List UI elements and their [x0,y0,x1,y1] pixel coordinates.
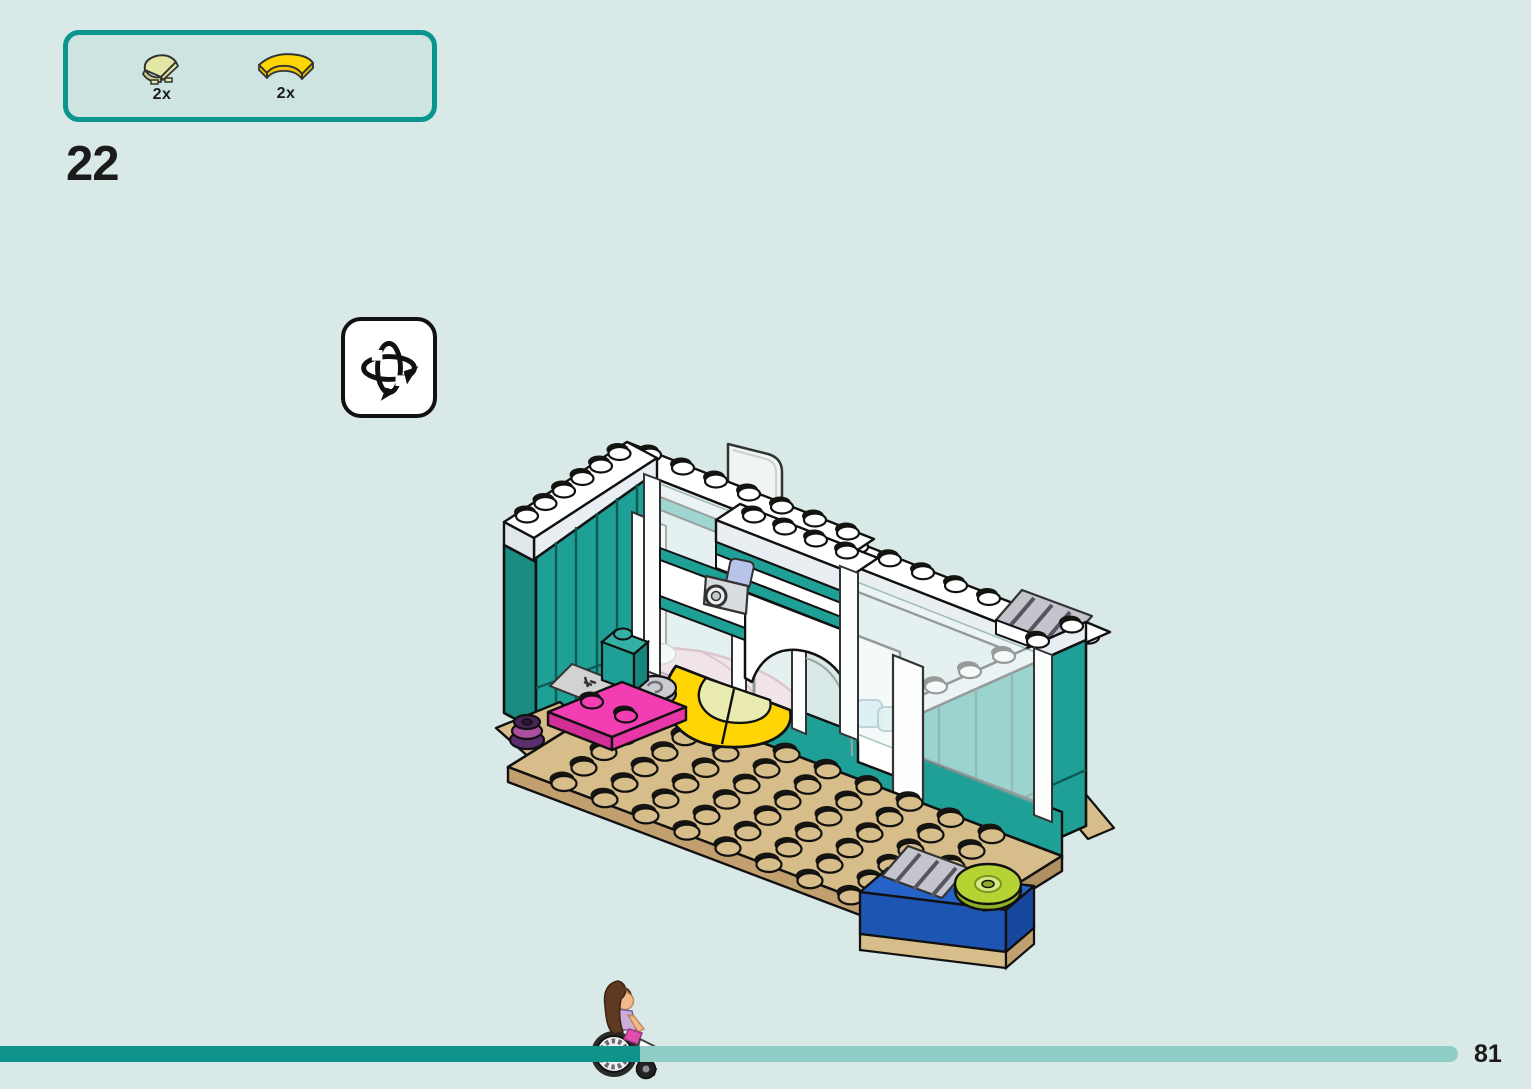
progress-bar-completed [0,1046,640,1062]
page-number: 81 [1474,1040,1502,1069]
rotate-model-3d-icon [353,330,425,406]
model-illustration [478,420,1126,985]
part-curved-macaroni-tile: 2x [250,50,322,103]
rotate-model-hint [341,317,437,418]
part-count-label: 2x [153,86,172,104]
curved-macaroni-tile-icon [254,50,318,84]
lime-disc [955,864,1021,912]
quarter-round-tile-icon [138,49,186,85]
part-quarter-round-tile: 2x [126,49,198,104]
flower-piece [510,715,544,749]
minidoll-wheelchair-marker [589,977,661,1081]
instruction-page: 2x 2x 22 [0,0,1531,1089]
step-number: 22 [66,136,119,192]
part-count-label: 2x [277,85,296,103]
parts-callout-box: 2x 2x [63,30,437,122]
progress-bar-remaining [640,1046,1458,1062]
